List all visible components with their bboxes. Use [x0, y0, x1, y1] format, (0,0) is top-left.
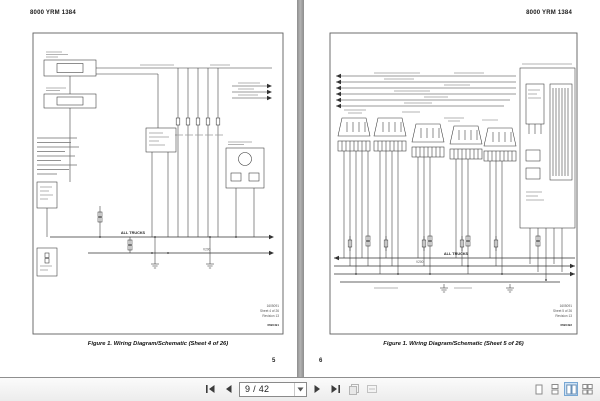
- plot-number-right: 6690492: [560, 323, 572, 327]
- fit-page-button[interactable]: [346, 381, 361, 397]
- document-page-right: 8000 YRM 1384: [304, 0, 600, 377]
- fit-page-icon: [348, 383, 360, 395]
- pdf-page-spread: 8000 YRM 1384: [0, 0, 600, 377]
- combobox-dropdown-arrow-icon[interactable]: [294, 383, 306, 396]
- single-page-view-icon: [534, 384, 544, 395]
- wire-ref-label-right: V200: [416, 260, 424, 264]
- two-page-view-button[interactable]: [564, 382, 578, 396]
- two-page-view-icon: [566, 384, 577, 395]
- first-page-icon: [205, 384, 216, 394]
- document-page-left: 8000 YRM 1384: [0, 0, 297, 377]
- continuous-view-button[interactable]: [548, 382, 562, 396]
- drawing-number-left: 1605091: [267, 304, 280, 308]
- sheet-number-left: Sheet 4 of 26: [260, 309, 279, 313]
- first-page-button[interactable]: [203, 381, 218, 397]
- plot-number-left: 6690491: [267, 323, 279, 327]
- page-view-mode-group: [532, 382, 594, 396]
- previous-page-icon: [224, 384, 233, 394]
- page-number-right: 6: [319, 358, 322, 364]
- two-page-continuous-view-button[interactable]: [580, 382, 594, 396]
- figure-caption-right: Figure 1. Wiring Diagram/Schematic (Shee…: [330, 341, 577, 347]
- drawing-number-right: 1605091: [560, 304, 573, 308]
- next-page-icon: [313, 384, 322, 394]
- fit-width-icon: [366, 383, 378, 395]
- page-number-left: 5: [272, 358, 275, 364]
- page-number-value: 9 / 42: [240, 384, 294, 394]
- page-navigation-group: 9 / 42: [203, 381, 379, 397]
- wiring-diagram-sheet4: ALL TRUCKS V200 1605091 Sheet 4 of 26 Re…: [0, 0, 297, 377]
- last-page-icon: [330, 384, 341, 394]
- last-page-button[interactable]: [328, 381, 343, 397]
- wiring-diagram-sheet5: ALL TRUCKS V200 1605091 Sheet 5 of 26 Re…: [304, 0, 600, 377]
- page-gutter: [297, 0, 304, 377]
- wire-ref-label-left: V200: [203, 248, 211, 252]
- single-page-view-button[interactable]: [532, 382, 546, 396]
- continuous-view-icon: [550, 384, 560, 395]
- pdf-viewer-toolbar: 9 / 42: [0, 377, 600, 401]
- all-trucks-label-left: ALL TRUCKS: [121, 231, 146, 235]
- next-page-button[interactable]: [310, 381, 325, 397]
- all-trucks-label-right: ALL TRUCKS: [444, 252, 469, 256]
- two-page-continuous-view-icon: [582, 384, 593, 395]
- fit-width-button[interactable]: [364, 381, 379, 397]
- previous-page-button[interactable]: [221, 381, 236, 397]
- page-number-combobox[interactable]: 9 / 42: [239, 382, 307, 397]
- sheet-number-right: Sheet 5 of 26: [553, 309, 572, 313]
- revision-right: Revision 13: [555, 314, 572, 318]
- revision-left: Revision 13: [262, 314, 279, 318]
- figure-caption-left: Figure 1. Wiring Diagram/Schematic (Shee…: [33, 341, 283, 347]
